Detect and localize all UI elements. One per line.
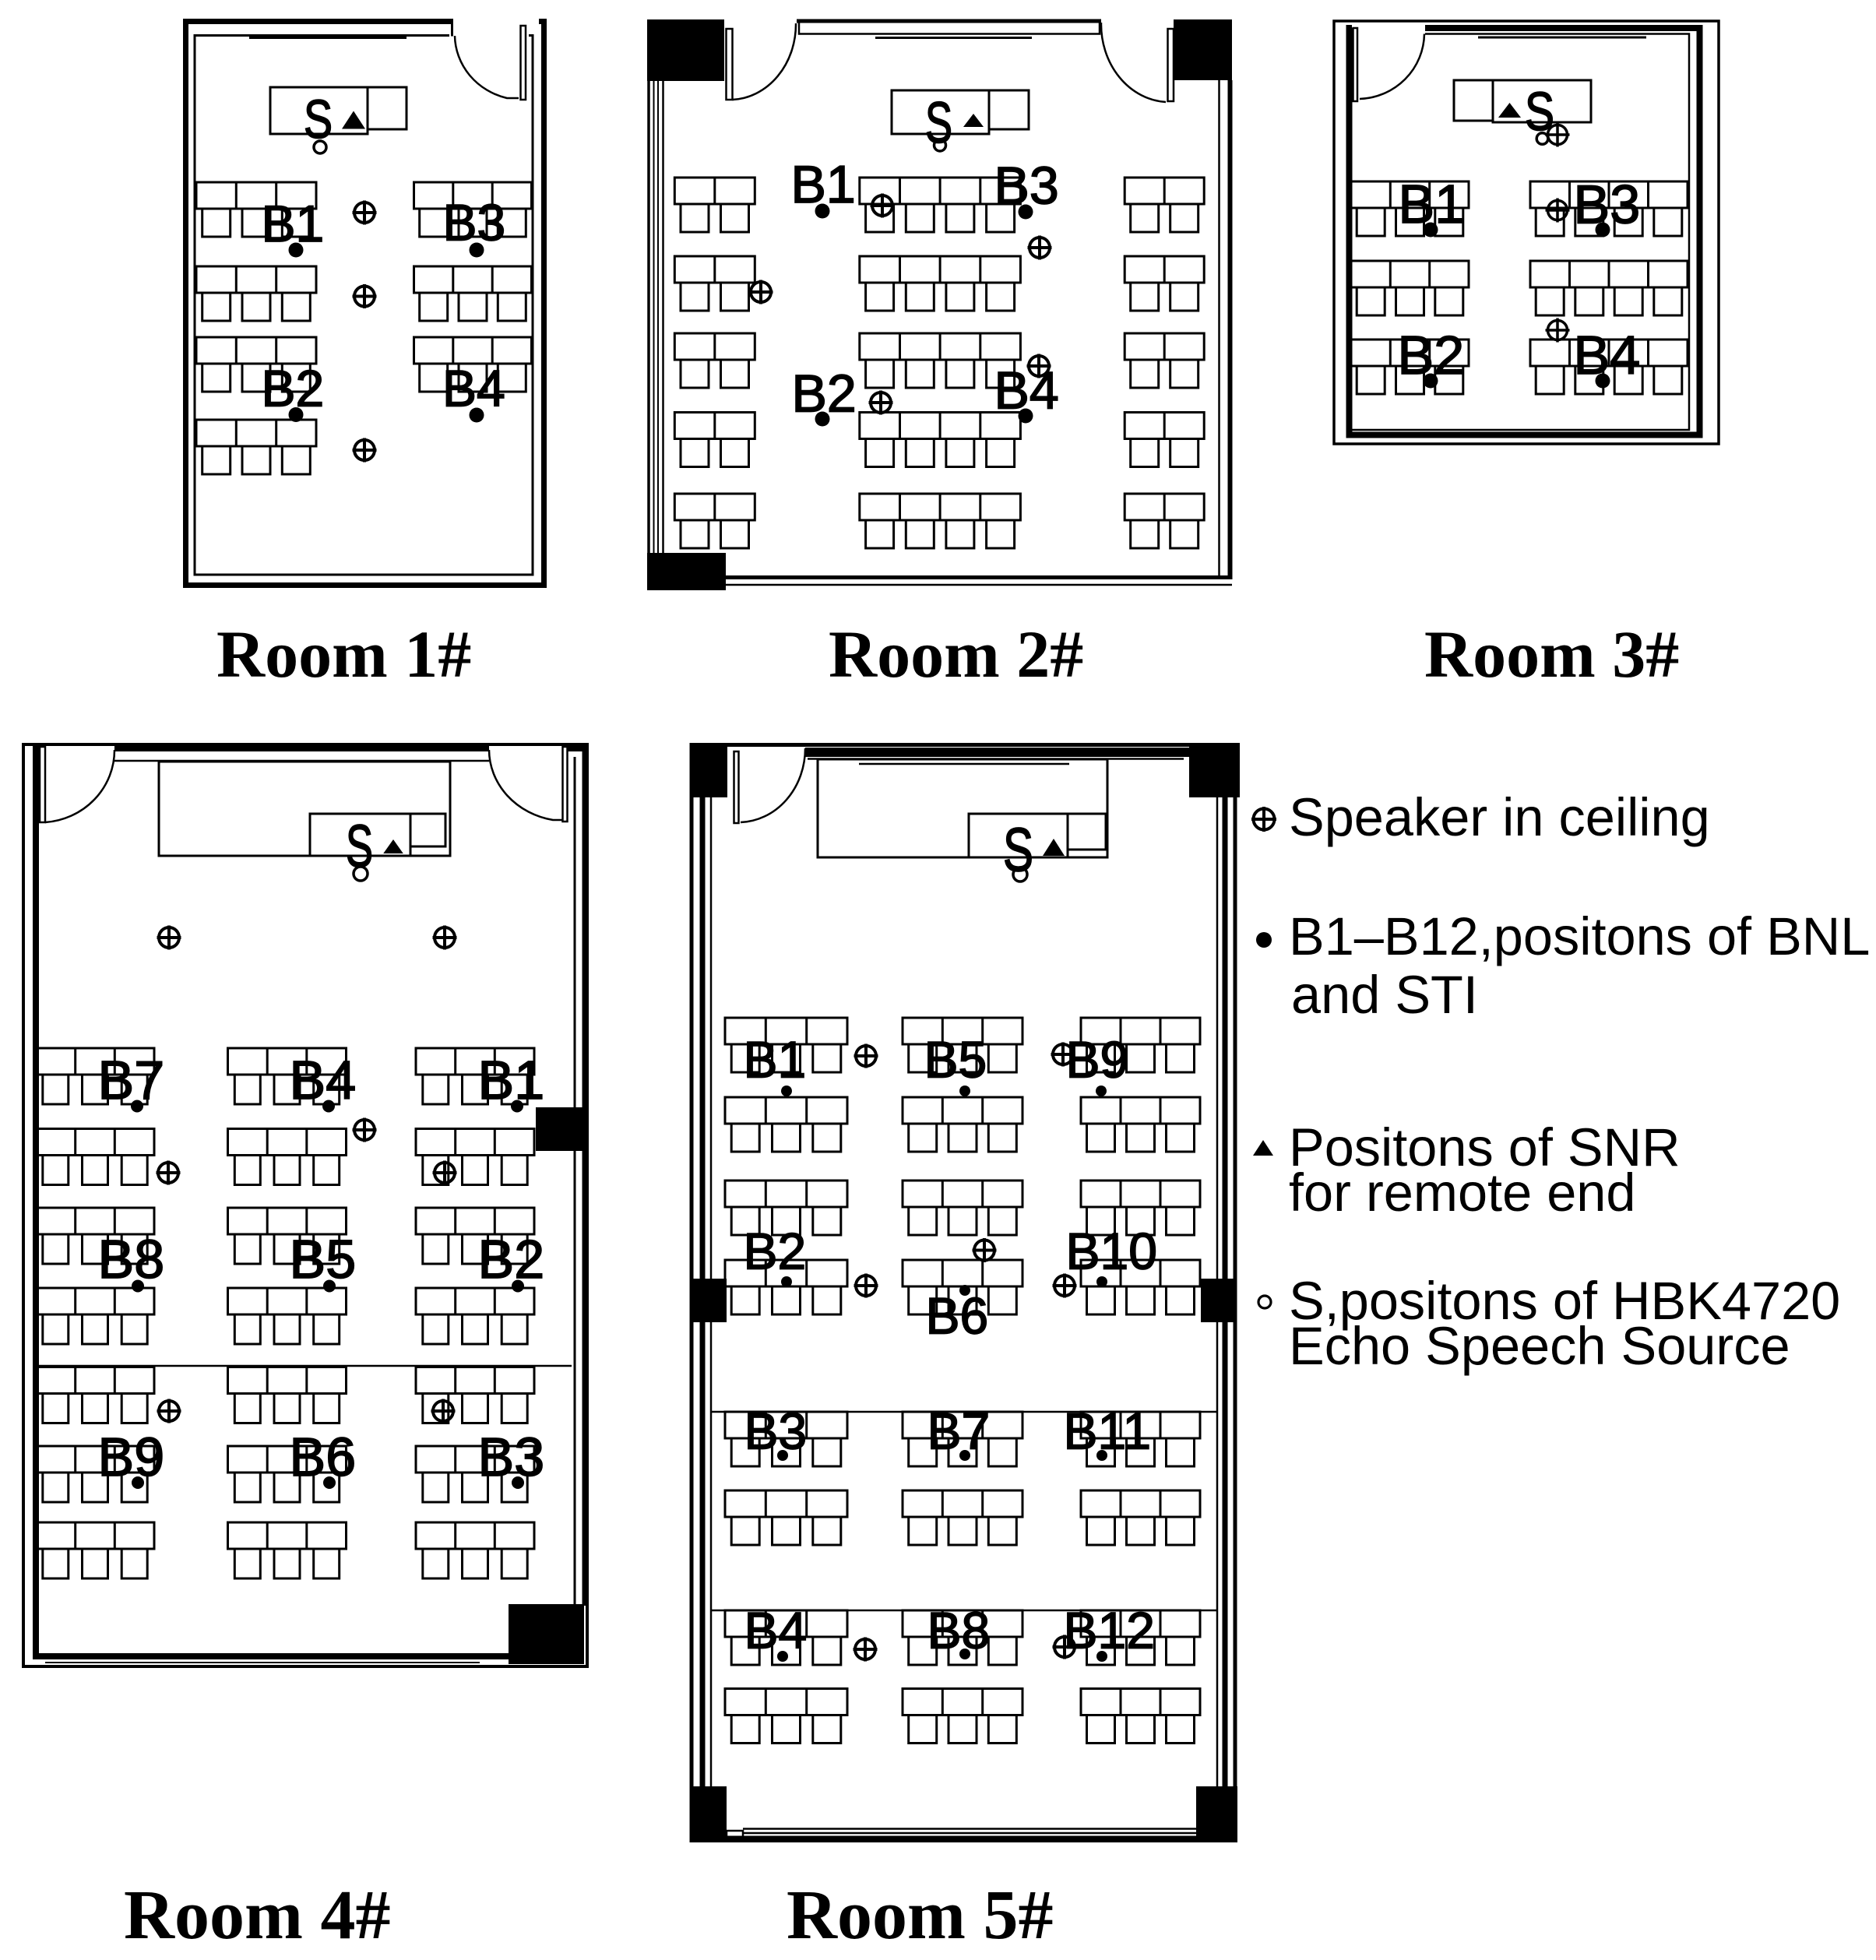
svg-text:S: S (925, 90, 952, 155)
svg-text:B9: B9 (98, 1427, 165, 1487)
svg-text:B3: B3 (744, 1402, 808, 1459)
svg-text:B7: B7 (927, 1402, 991, 1459)
svg-text:B1: B1 (744, 1030, 807, 1088)
svg-text:B11: B11 (1064, 1402, 1152, 1459)
svg-text:B5: B5 (924, 1030, 987, 1088)
svg-text:B2: B2 (744, 1222, 807, 1279)
svg-text:Room 2#: Room 2# (829, 617, 1083, 691)
svg-text:B5: B5 (290, 1229, 357, 1290)
svg-text:S: S (1003, 815, 1033, 884)
svg-text:B4: B4 (744, 1601, 808, 1659)
svg-text:B12: B12 (1064, 1601, 1155, 1659)
svg-text:B9: B9 (1066, 1030, 1129, 1088)
svg-text:Room 5#: Room 5# (787, 1877, 1053, 1954)
svg-text:for remote end: for remote end (1289, 1163, 1635, 1223)
svg-text:B4: B4 (442, 359, 505, 417)
svg-text:and STI: and STI (1291, 965, 1478, 1025)
svg-text:B2: B2 (478, 1229, 545, 1290)
svg-text:B4: B4 (290, 1050, 357, 1110)
svg-text:B10: B10 (1066, 1222, 1157, 1279)
svg-text:B3: B3 (443, 193, 506, 251)
svg-text:B1: B1 (478, 1050, 545, 1110)
svg-text:Room 1#: Room 1# (216, 617, 471, 691)
svg-text:B6: B6 (926, 1286, 989, 1344)
svg-text:Room 4#: Room 4# (124, 1877, 390, 1954)
svg-text:B7: B7 (98, 1050, 165, 1110)
svg-text:Room 3#: Room 3# (1424, 617, 1679, 691)
svg-text:S: S (346, 813, 373, 880)
svg-text:Speaker in ceiling: Speaker in ceiling (1289, 787, 1710, 847)
svg-text:B6: B6 (290, 1427, 357, 1487)
svg-text:B8: B8 (98, 1229, 165, 1290)
svg-text:B1–B12,positons of BNL: B1–B12,positons of BNL (1289, 906, 1870, 966)
svg-text:Echo Speech Source: Echo Speech Source (1289, 1316, 1790, 1376)
svg-text:B3: B3 (478, 1427, 545, 1487)
svg-text:B8: B8 (927, 1601, 991, 1659)
